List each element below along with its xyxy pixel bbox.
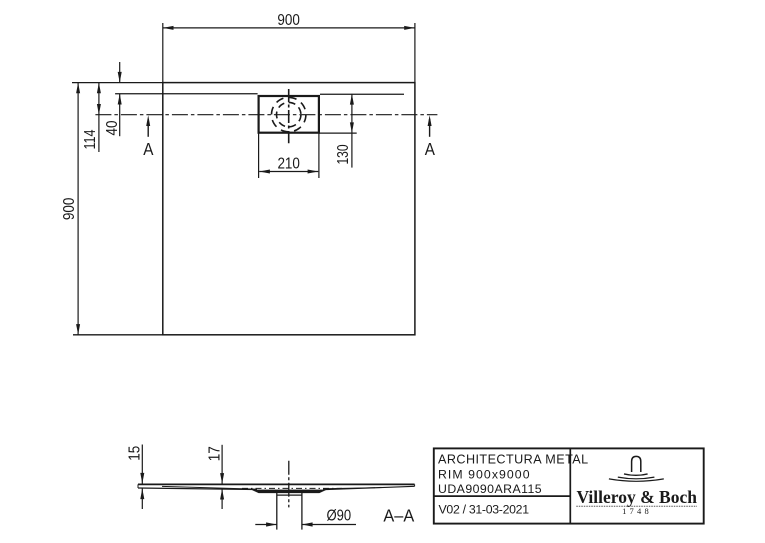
svg-text:ARCHITECTURA METAL: ARCHITECTURA METAL	[438, 452, 589, 466]
svg-text:UDA9090ARA115: UDA9090ARA115	[438, 482, 542, 496]
svg-text:17: 17	[206, 446, 223, 461]
svg-text:A: A	[425, 139, 435, 159]
svg-text:900: 900	[277, 12, 300, 29]
svg-text:210: 210	[277, 155, 300, 172]
svg-text:130: 130	[335, 144, 352, 164]
svg-text:Ø90: Ø90	[327, 507, 352, 524]
svg-text:RIM 900x9000: RIM 900x9000	[438, 467, 531, 481]
svg-text:Villeroy & Boch: Villeroy & Boch	[576, 487, 697, 507]
svg-text:A: A	[143, 139, 153, 159]
svg-text:15: 15	[127, 446, 144, 461]
svg-text:V02 / 31-03-2021: V02 / 31-03-2021	[439, 503, 530, 517]
svg-text:40: 40	[104, 120, 121, 135]
svg-text:900: 900	[61, 198, 78, 221]
svg-text:114: 114	[82, 129, 99, 149]
svg-text:1748: 1748	[622, 506, 652, 516]
svg-text:A–A: A–A	[383, 505, 414, 525]
